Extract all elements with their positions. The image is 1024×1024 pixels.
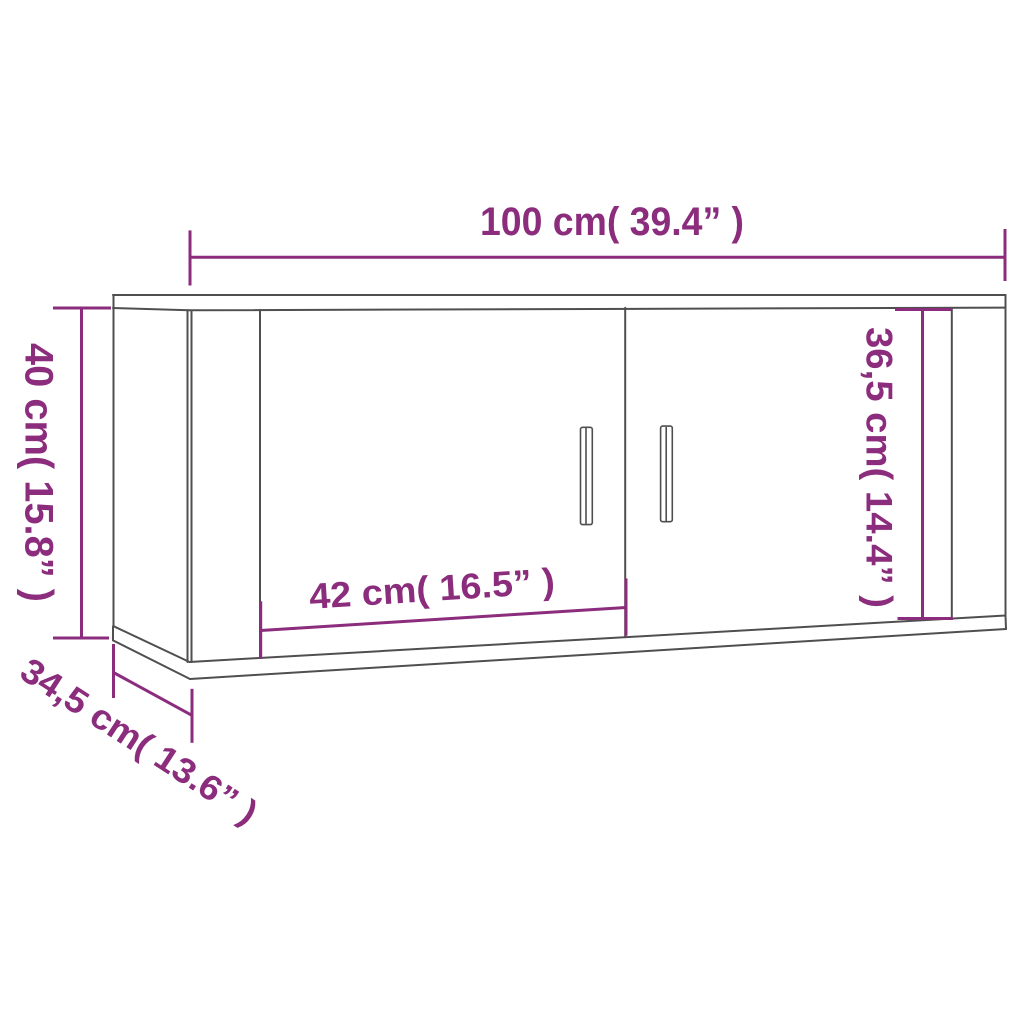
svg-text:40 cm( 15.8” ): 40 cm( 15.8” ) — [17, 343, 61, 602]
svg-text:34,5 cm( 13.6” ): 34,5 cm( 13.6” ) — [13, 651, 264, 833]
svg-text:36,5 cm( 14.4” ): 36,5 cm( 14.4” ) — [859, 327, 900, 608]
svg-text:42 cm( 16.5” ): 42 cm( 16.5” ) — [308, 560, 556, 617]
svg-text:100 cm( 39.4” ): 100 cm( 39.4” ) — [480, 200, 744, 244]
